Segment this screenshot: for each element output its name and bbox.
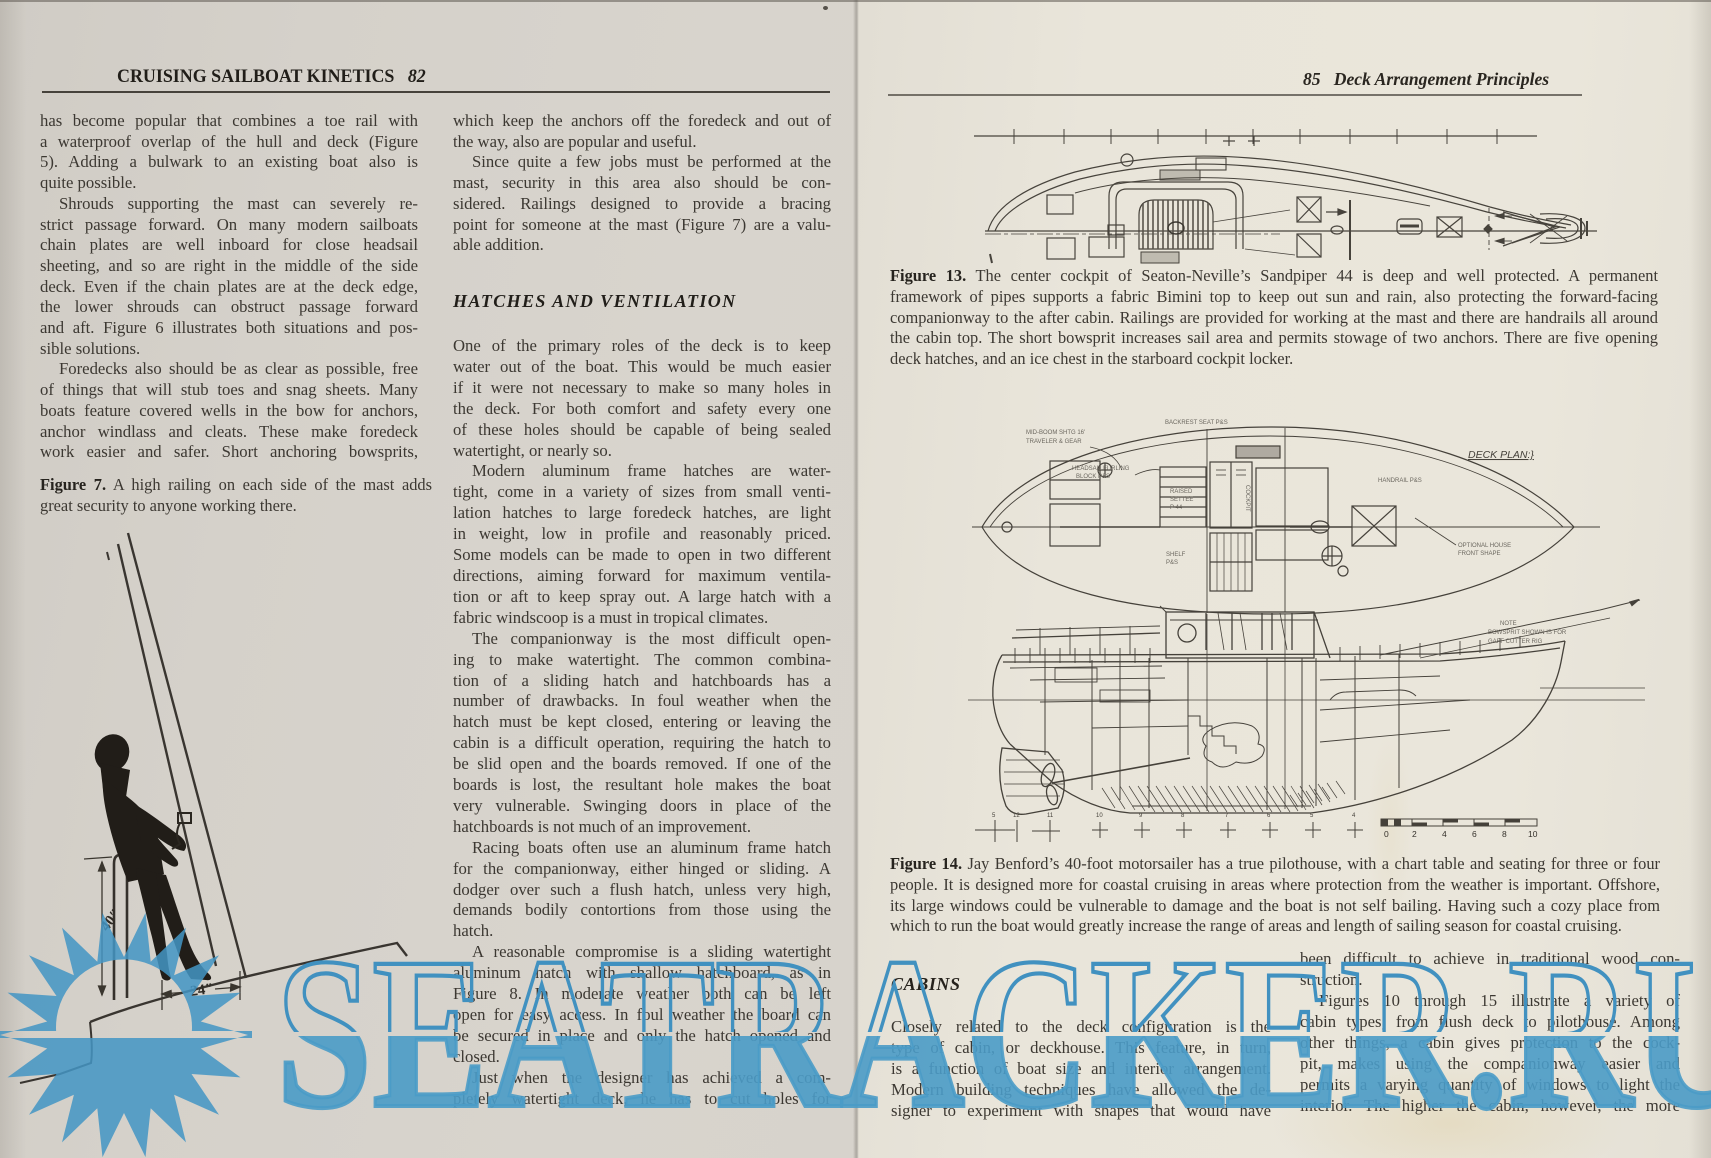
svg-text:12: 12: [1013, 813, 1020, 819]
svg-text:TRAVELER & GEAR: TRAVELER & GEAR: [1026, 439, 1082, 445]
svg-text:10: 10: [1528, 829, 1538, 839]
svg-text:9: 9: [1139, 813, 1143, 819]
svg-text:NOTE: NOTE: [1500, 621, 1517, 627]
svg-text:BACKREST SEAT P&S: BACKREST SEAT P&S: [1165, 420, 1228, 426]
svg-text:SHELF: SHELF: [1166, 552, 1186, 558]
svg-text:11: 11: [1047, 813, 1054, 819]
svg-text:8: 8: [1502, 829, 1507, 839]
svg-text:MID-BOOM SHTG 16': MID-BOOM SHTG 16': [1026, 430, 1085, 436]
svg-text:RAISED: RAISED: [1170, 489, 1193, 495]
svg-text:8: 8: [1181, 813, 1185, 819]
svg-text:6: 6: [1472, 829, 1477, 839]
svg-text:2: 2: [1412, 829, 1417, 839]
svg-text:OPTIONAL HOUSE: OPTIONAL HOUSE: [1458, 543, 1511, 549]
svg-text:4: 4: [1442, 829, 1447, 839]
svg-text:10: 10: [1096, 813, 1103, 819]
svg-text:5: 5: [1310, 813, 1314, 819]
svg-text:SETTEE: SETTEE: [1170, 497, 1193, 503]
svg-text:4: 4: [1352, 813, 1356, 819]
svg-text:P 44: P 44: [1170, 505, 1183, 511]
svg-text:7: 7: [1225, 813, 1229, 819]
svg-text:0: 0: [1384, 829, 1389, 839]
svg-text:5: 5: [992, 813, 996, 819]
svg-text:FRONT SHAPE: FRONT SHAPE: [1458, 551, 1501, 557]
svg-text:COCKPIT: COCKPIT: [1244, 485, 1250, 512]
svg-text:BLOCK P&S: BLOCK P&S: [1076, 474, 1110, 480]
svg-text:DECK PLAN:}: DECK PLAN:}: [1468, 449, 1534, 461]
svg-text:6: 6: [1267, 813, 1271, 819]
svg-text:HEADSAIL FURLING: HEADSAIL FURLING: [1072, 466, 1130, 472]
svg-text:24″: 24″: [189, 981, 214, 1000]
svg-text:HANDRAIL P&S: HANDRAIL P&S: [1378, 478, 1422, 484]
svg-text:P&S: P&S: [1166, 560, 1178, 566]
